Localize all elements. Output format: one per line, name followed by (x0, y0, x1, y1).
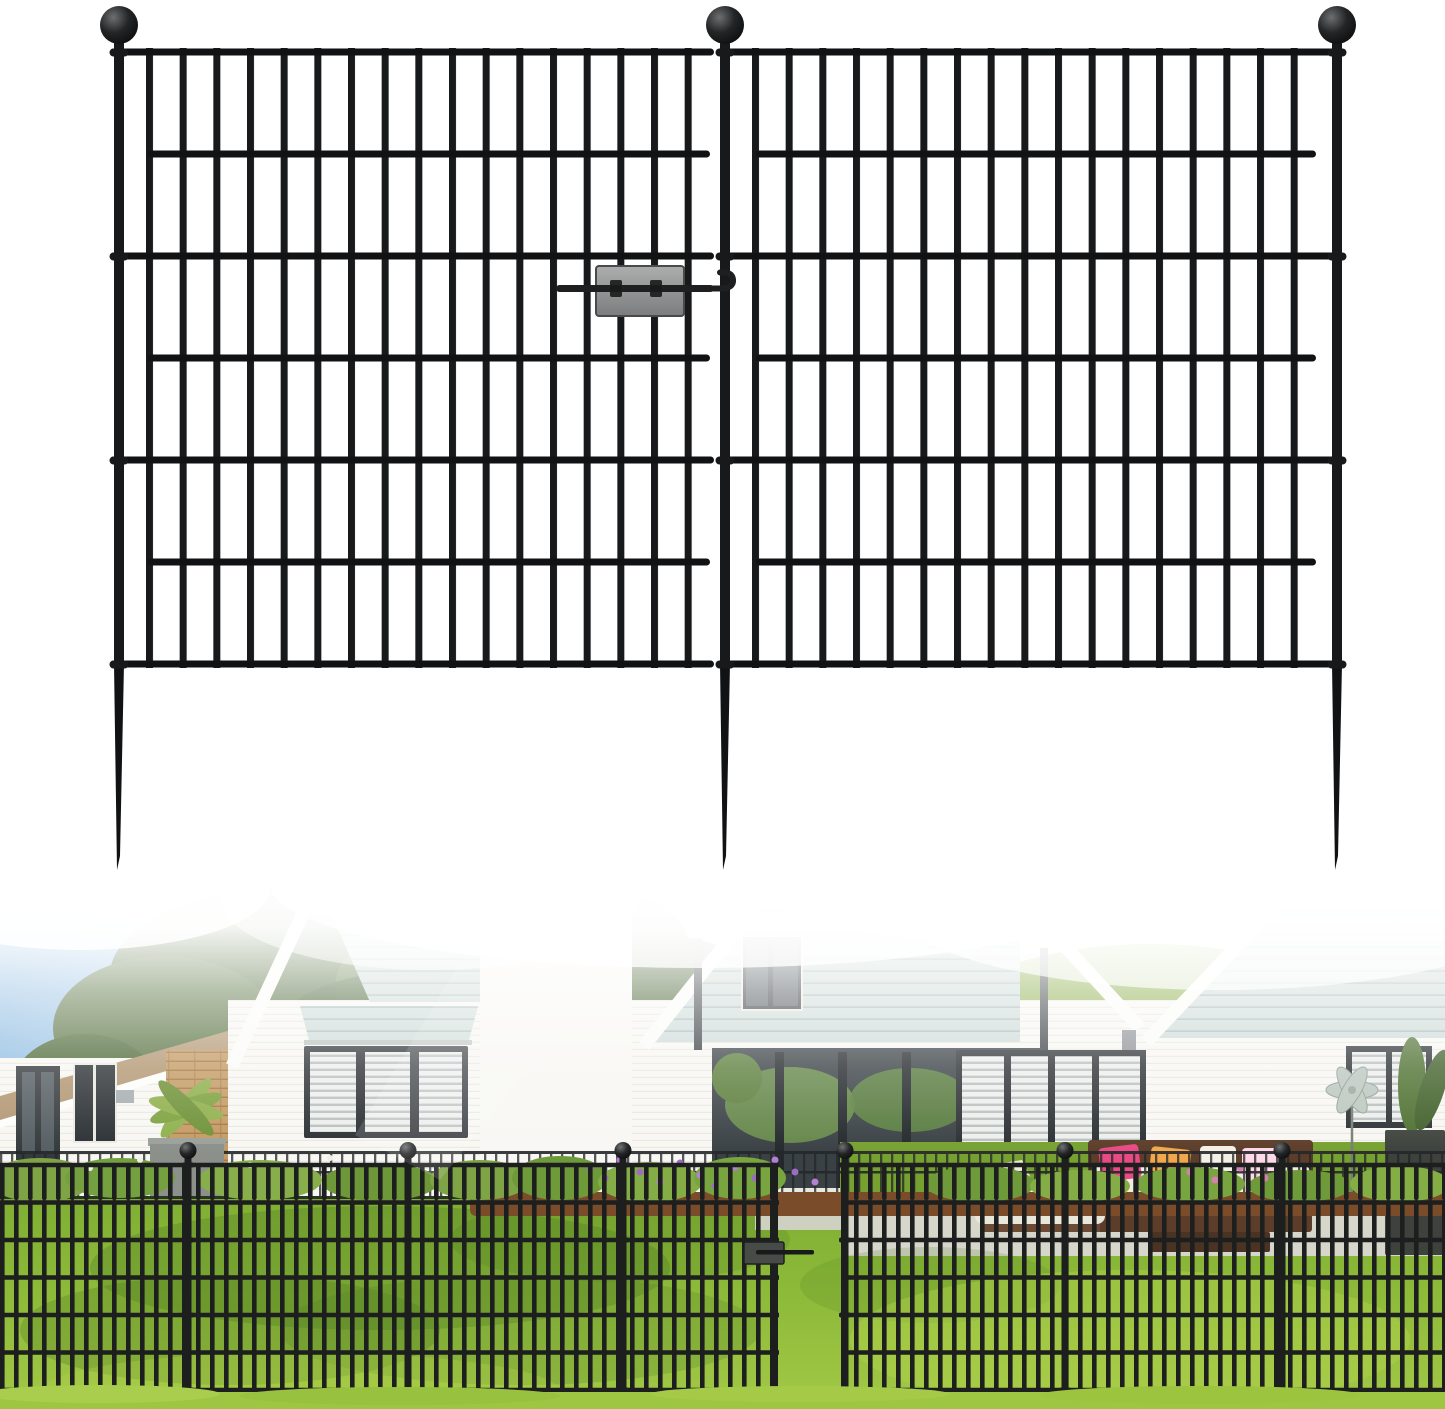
installed-scene-photo (0, 800, 1445, 1409)
photo-fade (0, 800, 1445, 1180)
gate-end-bar (773, 1163, 778, 1392)
stake-post-left (100, 6, 138, 870)
installed-fence-left-run (0, 1163, 779, 1393)
product-fence-drawing (100, 6, 1356, 870)
latch-pin (556, 285, 714, 292)
installed-fence (0, 1142, 1445, 1408)
left-panel (110, 48, 714, 668)
product-image (0, 0, 1445, 1409)
installed-fence-right-run (841, 1163, 1445, 1393)
right-panel (726, 48, 1344, 668)
product-image-canvas (0, 0, 1445, 1409)
stake-post-right (1318, 6, 1356, 870)
